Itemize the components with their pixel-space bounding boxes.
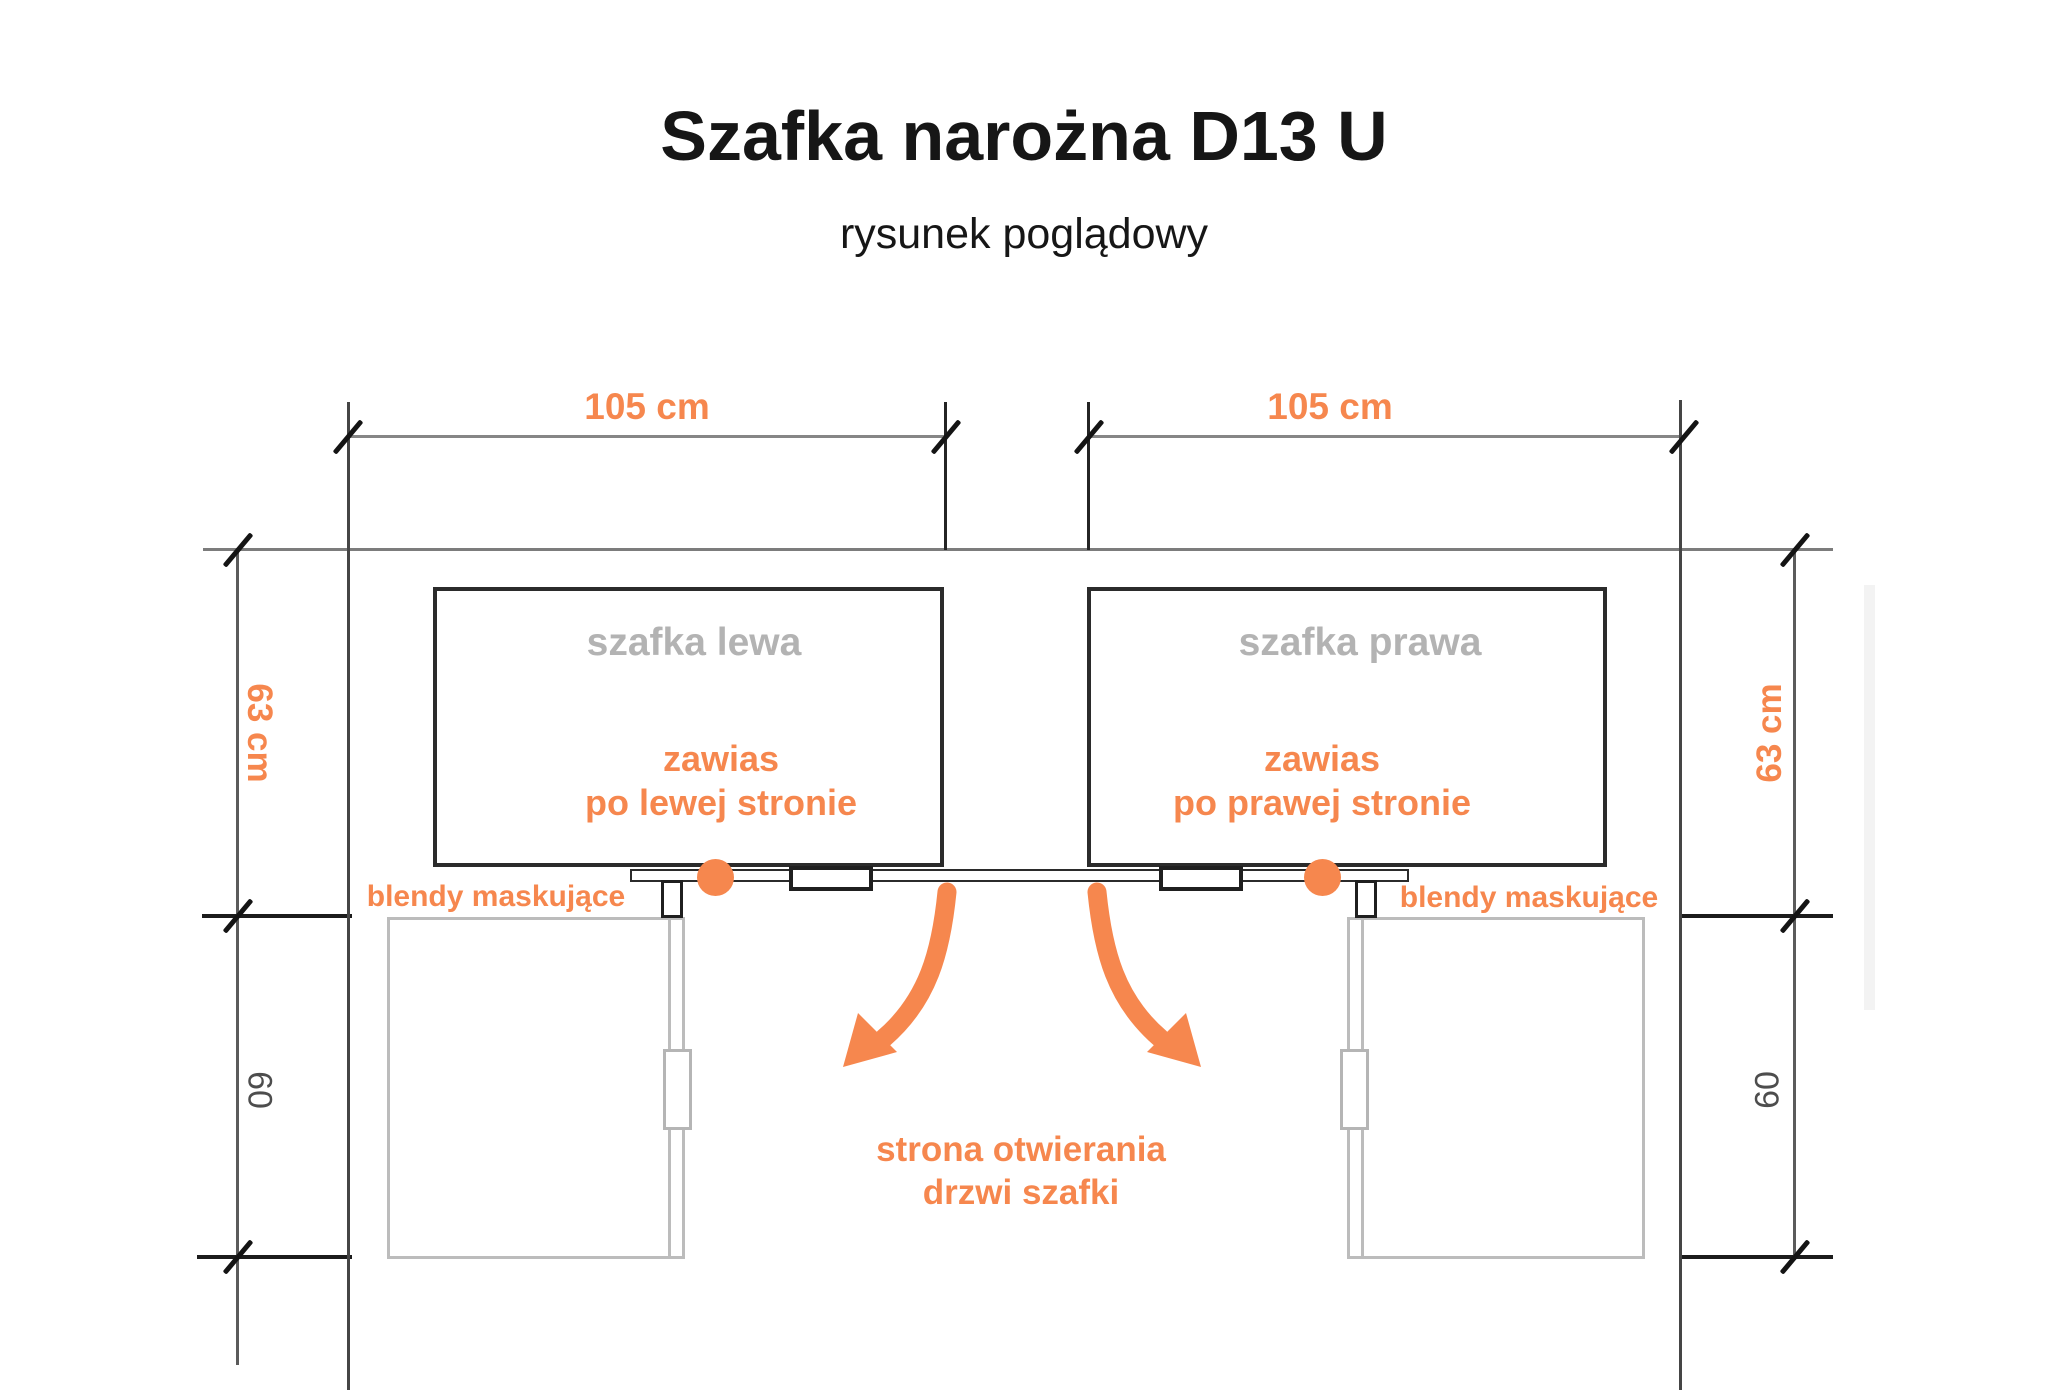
hinge-note-left-line2: po lewej stronie	[521, 781, 921, 825]
page-title: Szafka narożna D13 U	[0, 96, 2048, 176]
dimension-label-left-depth: 63 cm	[239, 683, 279, 782]
page-subtitle: rysunek poglądowy	[0, 210, 2048, 259]
door-outline-left	[387, 917, 671, 1259]
dimension-label-right-depth: 63 cm	[1750, 683, 1790, 782]
extension-line-center-right	[1087, 402, 1090, 550]
hinge-note-left-line1: zawias	[521, 737, 921, 781]
dimension-label-right-lower: 60	[1749, 1071, 1788, 1109]
hinge-dot-icon-left	[697, 859, 734, 896]
cabinet-right-name: szafka prawa	[1210, 621, 1510, 665]
hinge-dot-icon-right	[1304, 859, 1341, 896]
front-panel-piece-right	[1159, 866, 1243, 891]
dimension-line-top-right	[1088, 435, 1684, 438]
cabinet-front-strip	[630, 869, 1409, 882]
front-panel-piece-left	[789, 866, 873, 891]
masking-blende-right	[1355, 880, 1377, 918]
extension-line-left-bottom	[197, 1255, 352, 1259]
extension-line-right-middle	[1680, 914, 1833, 918]
door-hinge-plate-right	[1340, 1049, 1369, 1130]
dimension-line-right-vertical	[1793, 550, 1796, 1260]
curved-arrow-down-right-icon	[1097, 892, 1201, 1067]
technical-drawing-page: Szafka narożna D13 U rysunek poglądowy	[0, 0, 2048, 1400]
dimension-line-left-vertical	[236, 550, 239, 1365]
dimension-label-left-lower: 60	[240, 1071, 279, 1109]
curved-arrow-down-left-icon	[843, 892, 947, 1067]
extension-line-center-left	[944, 402, 947, 550]
opening-side-note-line1: strona otwierania	[821, 1128, 1221, 1171]
scan-artifact-band	[1864, 585, 1875, 1010]
masking-blende-left	[661, 880, 683, 918]
door-outline-right	[1361, 917, 1645, 1259]
hinge-note-left: zawias po lewej stronie	[521, 737, 921, 825]
wall-line-right	[1679, 400, 1682, 1390]
hinge-note-right: zawias po prawej stronie	[1122, 737, 1522, 825]
opening-side-note-line2: drzwi szafki	[821, 1171, 1221, 1214]
dimension-line-top-left	[347, 435, 947, 438]
opening-side-note: strona otwierania drzwi szafki	[821, 1128, 1221, 1214]
blende-label-right: blendy maskujące	[1379, 881, 1679, 915]
dimension-label-top-left: 105 cm	[497, 386, 797, 428]
hinge-note-right-line2: po prawej stronie	[1122, 781, 1522, 825]
cabinet-left-name: szafka lewa	[544, 621, 844, 665]
dimension-label-top-right: 105 cm	[1180, 386, 1480, 428]
door-hinge-plate-left	[663, 1049, 692, 1130]
hinge-note-right-line1: zawias	[1122, 737, 1522, 781]
wall-line-top	[203, 548, 1833, 551]
extension-line-right-bottom	[1680, 1255, 1833, 1259]
extension-line-left-middle	[202, 914, 352, 918]
blende-label-left: blendy maskujące	[346, 880, 646, 914]
